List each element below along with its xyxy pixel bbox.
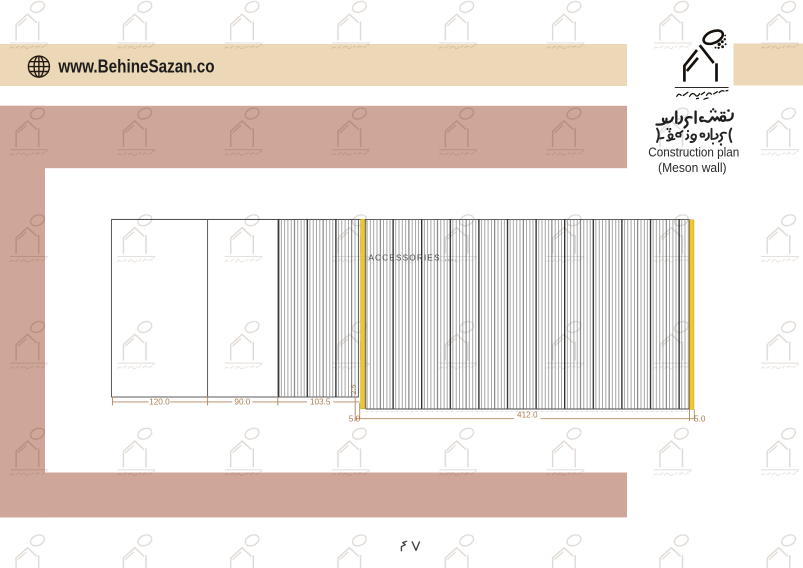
svg-text:2.5: 2.5 xyxy=(349,385,358,395)
svg-text:90.0: 90.0 xyxy=(234,397,250,406)
svg-text:412.0: 412.0 xyxy=(517,410,538,419)
svg-text:(Meson wall): (Meson wall) xyxy=(658,161,727,175)
svg-text:ACCESSORIES ....: ACCESSORIES .... xyxy=(368,253,458,262)
svg-text:120.0: 120.0 xyxy=(149,397,170,406)
svg-text:www.BehineSazan.co: www.BehineSazan.co xyxy=(58,56,215,77)
svg-text:5.0: 5.0 xyxy=(694,414,706,423)
svg-text:Construction plan: Construction plan xyxy=(648,146,739,160)
svg-text:5.0: 5.0 xyxy=(349,414,361,423)
svg-text:103.5: 103.5 xyxy=(310,397,331,406)
